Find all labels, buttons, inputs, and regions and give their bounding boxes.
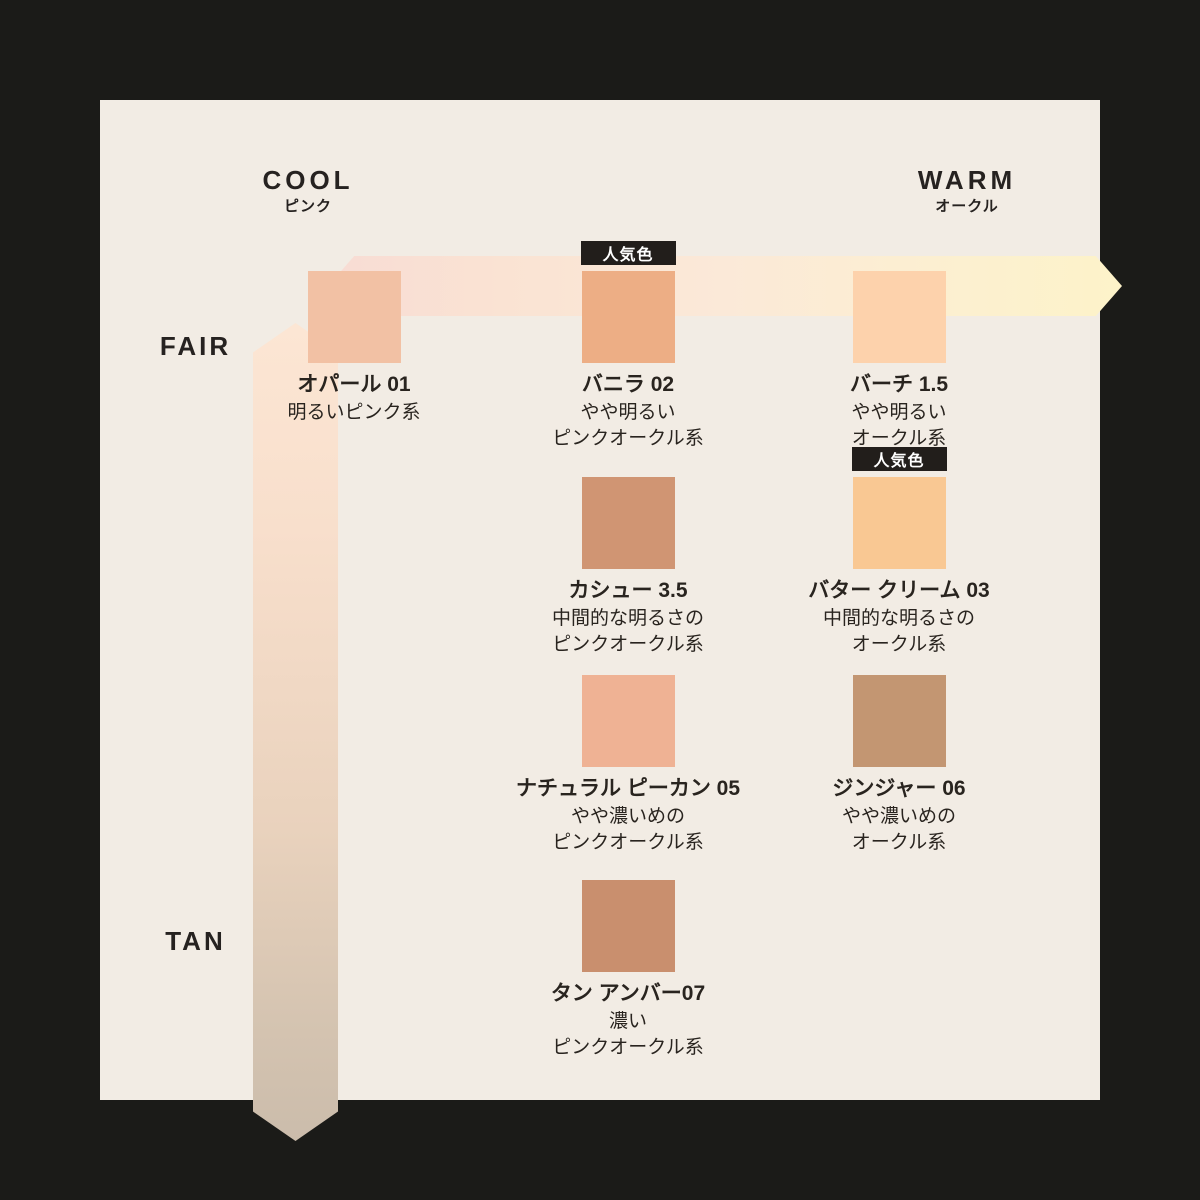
shade-swatch (582, 271, 675, 363)
shade-cell: 人気色バニラ 02やや明るい ピンクオークル系 (493, 241, 763, 451)
shade-description: 明るいピンク系 (287, 400, 420, 425)
popular-badge: 人気色 (852, 447, 947, 471)
shade-cell: 人気色ジンジャー 06やや濃いめの オークル系 (764, 645, 1034, 855)
shade-description: やや濃いめの オークル系 (842, 804, 956, 855)
shade-chart-image: COOL ピンク WARM オークル FAIR TAN 人気色オパール 01明る… (0, 0, 1200, 1200)
shade-name: タン アンバー07 (551, 981, 705, 1007)
shade-cell: 人気色バーチ 1.5やや明るい オークル系 (764, 241, 1034, 451)
shade-name: ジンジャー 06 (832, 776, 965, 802)
shade-swatch (308, 271, 401, 363)
shade-description: やや明るい オークル系 (851, 400, 946, 451)
shade-cell: 人気色カシュー 3.5中間的な明るさの ピンクオークル系 (493, 447, 763, 657)
shade-description: やや明るい ピンクオークル系 (552, 400, 703, 451)
shade-swatch (582, 477, 675, 569)
shade-swatch (853, 477, 946, 569)
shade-cell: 人気色ナチュラル ピーカン 05やや濃いめの ピンクオークル系 (493, 645, 763, 855)
shade-description: 濃い ピンクオークル系 (552, 1009, 703, 1060)
shade-name: バーチ 1.5 (850, 372, 948, 398)
shade-name: バター クリーム 03 (808, 578, 989, 604)
shade-name: カシュー 3.5 (568, 578, 687, 604)
shade-description: やや濃いめの ピンクオークル系 (552, 804, 703, 855)
warm-label: WARM (902, 167, 1032, 193)
shade-swatch (853, 271, 946, 363)
tan-axis-label: TAN (153, 928, 238, 954)
warm-axis-label: WARM オークル (902, 167, 1032, 214)
shade-swatch (582, 880, 675, 972)
shade-cell: 人気色オパール 01明るいピンク系 (219, 241, 489, 426)
cool-axis-label: COOL ピンク (243, 167, 373, 214)
cool-sub-label: ピンク (243, 199, 373, 214)
shade-swatch (582, 675, 675, 767)
shade-cell: 人気色タン アンバー07濃い ピンクオークル系 (493, 850, 763, 1060)
fair-tan-gradient-arrow (253, 323, 338, 1141)
warm-sub-label: オークル (902, 199, 1032, 214)
shade-cell: 人気色バター クリーム 03中間的な明るさの オークル系 (764, 447, 1034, 657)
shade-swatch (853, 675, 946, 767)
popular-badge: 人気色 (581, 241, 676, 265)
shade-name: オパール 01 (297, 372, 410, 398)
shade-name: ナチュラル ピーカン 05 (516, 776, 740, 802)
cool-label: COOL (243, 167, 373, 193)
shade-name: バニラ 02 (582, 372, 674, 398)
